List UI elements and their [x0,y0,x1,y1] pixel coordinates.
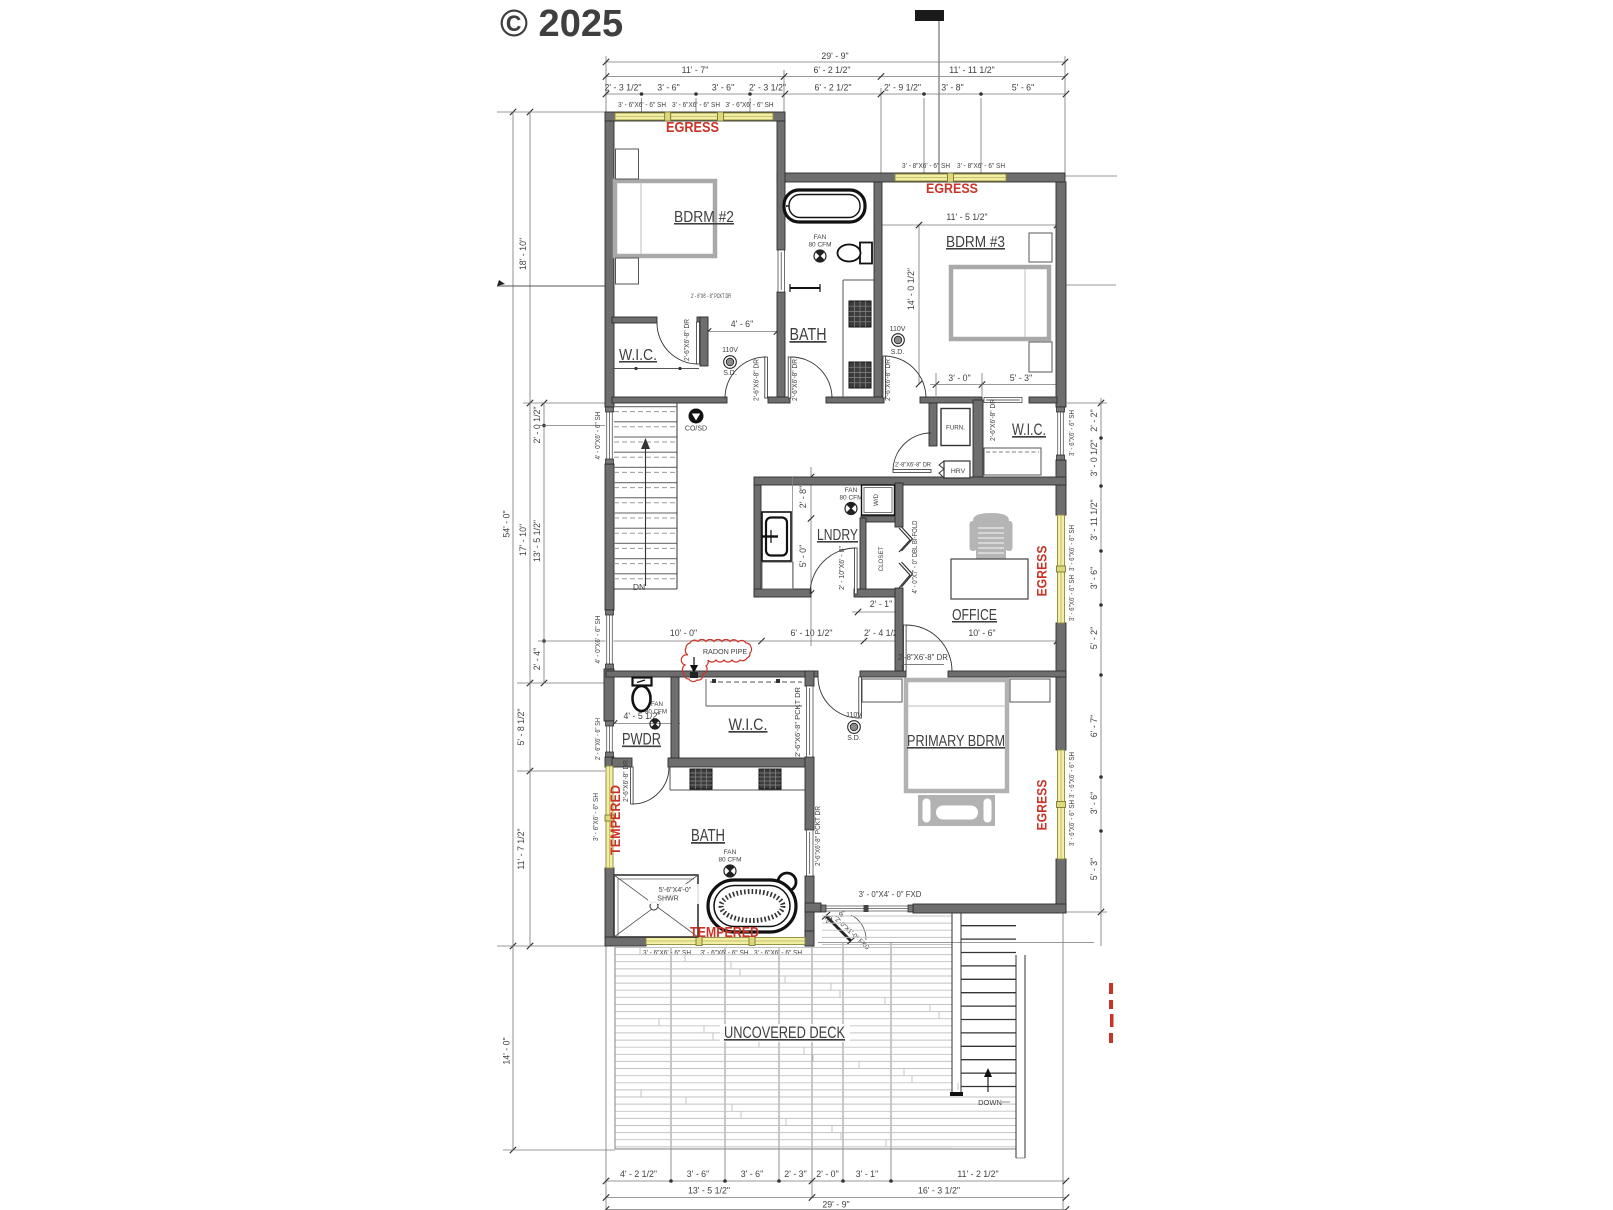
svg-text:80 CFM: 80 CFM [839,495,862,502]
svg-text:S.D.: S.D. [723,370,737,377]
svg-text:5' - 6": 5' - 6" [1012,83,1034,93]
svg-text:2'-6"X6'-8" PCKT DR: 2'-6"X6'-8" PCKT DR [815,806,822,866]
svg-text:3' - 11 1/2": 3' - 11 1/2" [1089,499,1099,540]
svg-text:RADON PIPE: RADON PIPE [703,647,748,656]
svg-text:110V: 110V [890,326,906,333]
svg-text:3' - 6": 3' - 6" [712,83,734,93]
svg-text:CO/SD: CO/SD [685,426,707,433]
svg-text:3' - 6"X6' - 6" SH: 3' - 6"X6' - 6" SH [672,100,720,109]
svg-text:3' - 6"X6' - 6" SH: 3' - 6"X6' - 6" SH [618,100,666,109]
svg-text:10' - 6": 10' - 6" [968,628,995,638]
svg-text:3' - 0": 3' - 0" [948,373,970,383]
svg-text:S.D.: S.D. [891,349,905,356]
svg-text:W.I.C.: W.I.C. [729,715,768,734]
svg-text:PRIMARY BDRM: PRIMARY BDRM [907,733,1005,750]
svg-text:11' - 2 1/2": 11' - 2 1/2" [957,1169,998,1179]
svg-text:5'-6"X4'-0": 5'-6"X4'-0" [659,887,692,894]
svg-text:5' - 3": 5' - 3" [1010,373,1032,383]
svg-text:6' - 10 1/2": 6' - 10 1/2" [791,628,833,638]
svg-text:3' - 6"X6' - 6" SH: 3' - 6"X6' - 6" SH [1067,525,1076,571]
svg-text:29' - 9": 29' - 9" [822,1200,849,1210]
svg-text:6' - 2 1/2": 6' - 2 1/2" [814,83,851,93]
svg-text:EGRESS: EGRESS [1035,546,1050,597]
svg-text:2'-6"X6'-8" DR: 2'-6"X6'-8" DR [885,359,892,401]
svg-text:BDRM #3: BDRM #3 [946,234,1005,251]
svg-text:18' - 10": 18' - 10" [518,238,528,270]
svg-text:W.I.C.: W.I.C. [619,347,657,364]
svg-text:CLOSET: CLOSET [878,546,885,571]
svg-text:3' - 8"X6' - 6" SH: 3' - 8"X6' - 6" SH [902,161,950,170]
svg-text:3' - 6"X6' - 6" SH: 3' - 6"X6' - 6" SH [701,948,749,957]
svg-text:110V: 110V [722,347,738,354]
svg-text:11' - 7 1/2": 11' - 7 1/2" [516,828,526,869]
svg-text:3' - 6": 3' - 6" [687,1169,709,1179]
svg-text:2' - 2": 2' - 2" [1089,409,1099,431]
svg-text:2'-8"X6'-8" DR: 2'-8"X6'-8" DR [898,653,948,662]
svg-text:BATH: BATH [790,324,827,344]
svg-text:80 CFM: 80 CFM [808,242,831,249]
svg-text:TEMPERED: TEMPERED [607,785,623,855]
svg-text:W.I.C.: W.I.C. [1012,421,1046,439]
svg-text:4' - 6": 4' - 6" [731,319,753,329]
svg-text:3' - 8"X6' - 6" SH: 3' - 8"X6' - 6" SH [957,161,1005,170]
svg-text:3' - 6"X6' - 6" SH: 3' - 6"X6' - 6" SH [1067,410,1076,456]
svg-text:14' - 0": 14' - 0" [502,1037,512,1064]
svg-text:14' - 0 1/2": 14' - 0 1/2" [906,268,916,310]
svg-text:3' - 0"X4' - 0" FXD: 3' - 0"X4' - 0" FXD [859,890,922,899]
svg-text:DOWN: DOWN [978,1098,1002,1107]
svg-text:11' - 11 1/2": 11' - 11 1/2" [949,65,995,75]
svg-text:5' - 8 1/2": 5' - 8 1/2" [516,708,526,745]
svg-text:EGRESS: EGRESS [1035,780,1050,831]
svg-text:6' - 7": 6' - 7" [1089,715,1099,737]
svg-text:FAN: FAN [651,701,663,708]
svg-text:3' - 6": 3' - 6" [1089,792,1099,814]
svg-text:3' - 8": 3' - 8" [941,83,963,93]
svg-text:5' - 3": 5' - 3" [1089,858,1099,880]
svg-text:S.D.: S.D. [847,735,861,742]
svg-text:80 CFM: 80 CFM [645,709,667,716]
svg-text:2' - 8": 2' - 8" [798,486,808,508]
svg-text:3' - 6"X6' - 6" SH: 3' - 6"X6' - 6" SH [754,948,802,957]
svg-text:2'-8"X6'-8" DR: 2'-8"X6'-8" DR [895,462,931,469]
svg-text:W/D: W/D [873,493,880,506]
svg-text:2' - 9 1/2": 2' - 9 1/2" [884,83,921,93]
svg-text:LNDRY: LNDRY [817,527,858,544]
svg-text:EGRESS: EGRESS [666,119,719,136]
svg-text:2'-6"X6'-8" DR: 2'-6"X6'-8" DR [754,359,761,401]
svg-text:16' - 3 1/2": 16' - 3 1/2" [918,1186,960,1196]
svg-text:10' - 0": 10' - 0" [670,628,697,638]
svg-text:6' - 2 1/2": 6' - 2 1/2" [813,65,850,75]
svg-text:4' - 0"X6' - 6" SH: 4' - 0"X6' - 6" SH [593,616,602,664]
svg-text:3' - 6"X6' - 6" SH: 3' - 6"X6' - 6" SH [1067,575,1076,621]
svg-text:TEMPERED: TEMPERED [690,924,759,941]
svg-text:SHWR: SHWR [657,896,678,903]
svg-text:3' - 1": 3' - 1" [856,1169,878,1179]
svg-text:OFFICE: OFFICE [952,607,997,624]
svg-text:3' - 6"X6' - 6" SH: 3' - 6"X6' - 6" SH [1067,800,1076,846]
svg-text:3' - 0 1/2": 3' - 0 1/2" [1089,439,1099,476]
svg-text:2' - 1": 2' - 1" [870,599,892,609]
svg-text:2' - 4": 2' - 4" [532,648,542,670]
svg-text:54' - 0": 54' - 0" [502,510,512,537]
svg-text:UNCOVERED DECK: UNCOVERED DECK [724,1024,845,1042]
svg-text:29' - 9": 29' - 9" [821,51,848,61]
svg-text:3' - 6"X6' - 6" SH: 3' - 6"X6' - 6" SH [591,793,600,841]
svg-text:3' - 6": 3' - 6" [1089,567,1099,589]
svg-text:17' - 10": 17' - 10" [518,524,528,556]
svg-text:110V: 110V [846,712,862,719]
svg-text:2'-6"X6'-8" DR: 2'-6"X6'-8" DR [684,319,691,361]
svg-text:3' - 6": 3' - 6" [741,1169,763,1179]
svg-text:80 CFM: 80 CFM [718,857,741,864]
svg-text:2'-6"X6'-8" DR: 2'-6"X6'-8" DR [792,359,799,401]
svg-text:2' - 3 1/2": 2' - 3 1/2" [749,83,786,93]
svg-text:PWDR: PWDR [622,731,661,749]
svg-text:BDRM #2: BDRM #2 [674,209,734,226]
svg-text:2'-6"X6'-8" PCKT DR: 2'-6"X6'-8" PCKT DR [795,687,802,757]
svg-text:13' - 5 1/2": 13' - 5 1/2" [688,1186,730,1196]
svg-text:3' - 6"X6' - 6" SH: 3' - 6"X6' - 6" SH [1067,752,1076,798]
svg-text:4' - 2 1/2": 4' - 2 1/2" [620,1169,657,1179]
svg-text:2' - 10"X6' - 8": 2' - 10"X6' - 8" [839,545,846,590]
svg-text:FURN.: FURN. [946,425,965,432]
svg-text:2' - 0 1/2": 2' - 0 1/2" [532,406,542,443]
svg-text:2'-6"X6'-8" DR: 2'-6"X6'-8" DR [990,399,997,441]
svg-text:2' - 6"X6' - 6" SH: 2' - 6"X6' - 6" SH [593,718,602,760]
svg-text:13' - 5 1/2": 13' - 5 1/2" [532,520,542,562]
svg-text:3' - 6"X6' - 6" SH: 3' - 6"X6' - 6" SH [643,948,691,957]
svg-text:FAN: FAN [845,487,858,494]
svg-text:2' - 0": 2' - 0" [816,1169,838,1179]
svg-text:4' - 0"X6' - 6" SH: 4' - 0"X6' - 6" SH [593,412,602,460]
svg-text:11' - 5 1/2": 11' - 5 1/2" [946,212,987,222]
svg-text:EGRESS: EGRESS [926,181,978,196]
svg-text:© 2025: © 2025 [500,3,623,45]
svg-text:BATH: BATH [691,825,725,845]
svg-text:2'-6"X6'-8" DR: 2'-6"X6'-8" DR [623,760,630,802]
svg-text:FAN: FAN [814,234,827,241]
svg-text:3' - 6"X6' - 6" SH: 3' - 6"X6' - 6" SH [726,100,774,109]
svg-text:HRV: HRV [951,468,966,475]
svg-text:4' - 0"X7' - 0" DBL BI-FOLD: 4' - 0"X7' - 0" DBL BI-FOLD [912,521,919,594]
svg-text:5' - 0": 5' - 0" [798,545,808,567]
svg-text:5' - 2": 5' - 2" [1089,627,1099,649]
svg-text:2' - 3 1/2": 2' - 3 1/2" [604,83,641,93]
svg-text:FAN: FAN [724,849,737,856]
svg-text:3' - 6": 3' - 6" [657,83,679,93]
svg-text:2' - 6"X6' - 8" PCKT DR: 2' - 6"X6' - 8" PCKT DR [691,293,731,300]
svg-text:11' - 7": 11' - 7" [682,65,709,75]
svg-text:2' - 3": 2' - 3" [784,1169,806,1179]
svg-text:DN: DN [633,582,645,592]
